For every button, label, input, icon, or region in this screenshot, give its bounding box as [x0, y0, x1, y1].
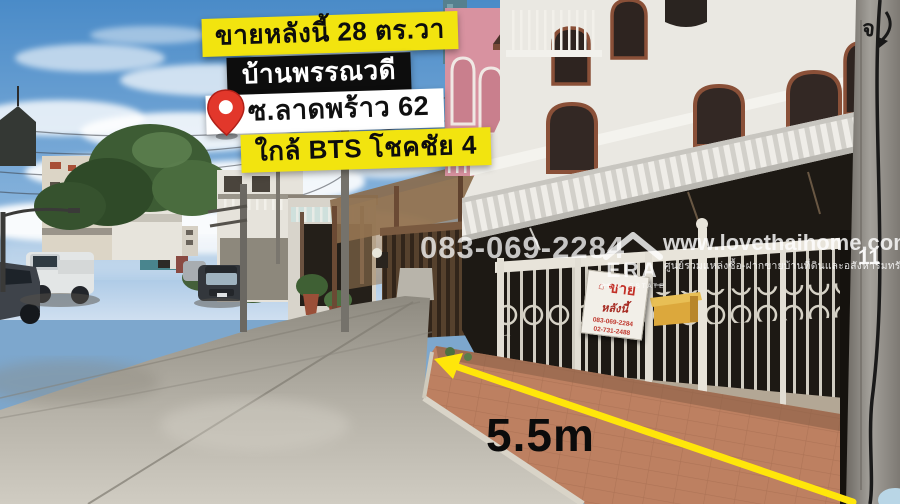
measurement-label: 5.5m	[486, 408, 595, 462]
listing-photo: 11 จ ⌂ ขาย หลังนี้ 083-069-2284 02-731-2…	[0, 0, 900, 504]
measurement-arrow	[0, 0, 900, 504]
